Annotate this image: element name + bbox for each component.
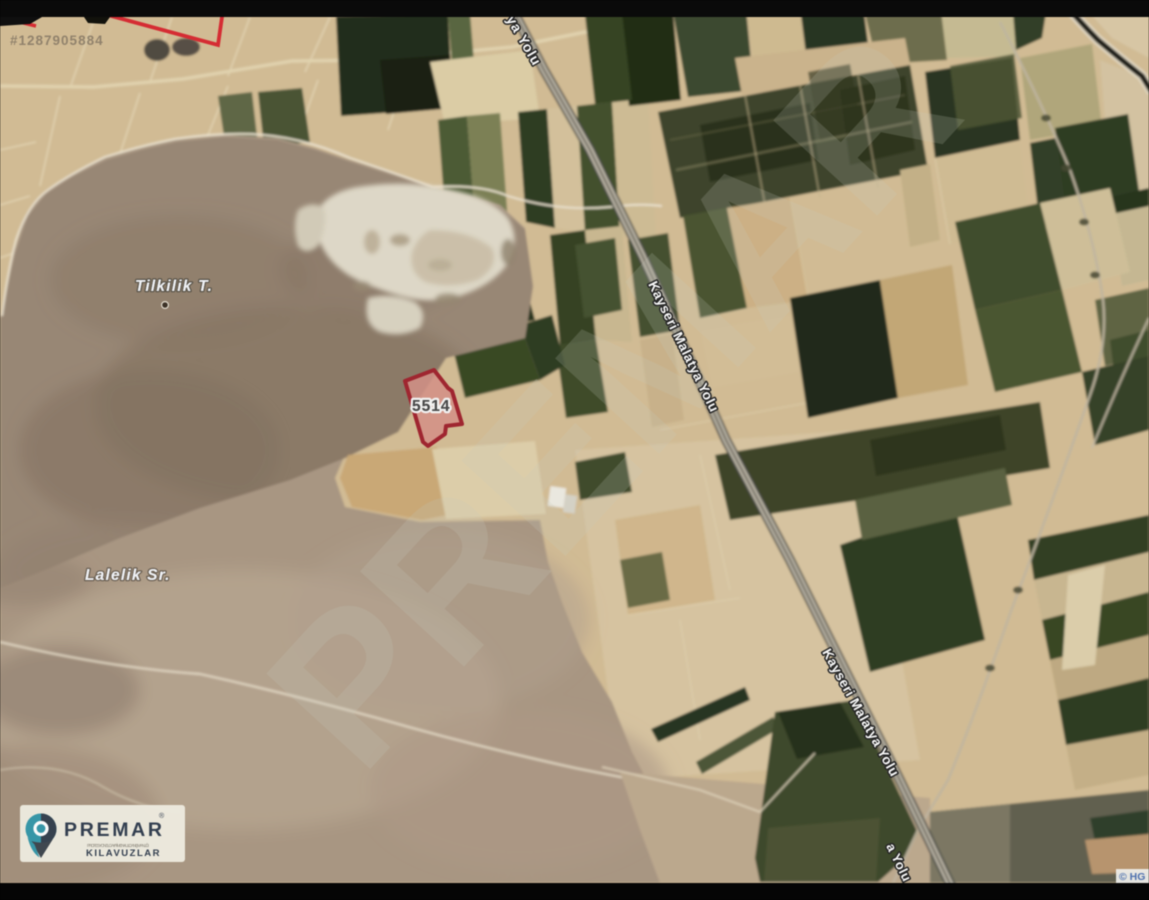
svg-text:Tilkilik T.: Tilkilik T. (135, 278, 213, 295)
svg-text:PREMAR: PREMAR (64, 819, 165, 841)
svg-text:KILAVUZLAR: KILAVUZLAR (86, 848, 161, 859)
svg-text:5514: 5514 (412, 398, 450, 415)
svg-text:#1287905884: #1287905884 (10, 33, 104, 48)
svg-text:© HG: © HG (1119, 871, 1145, 883)
svg-text:Lalelik Sr.: Lalelik Sr. (85, 567, 171, 584)
svg-text:®: ® (159, 812, 165, 820)
